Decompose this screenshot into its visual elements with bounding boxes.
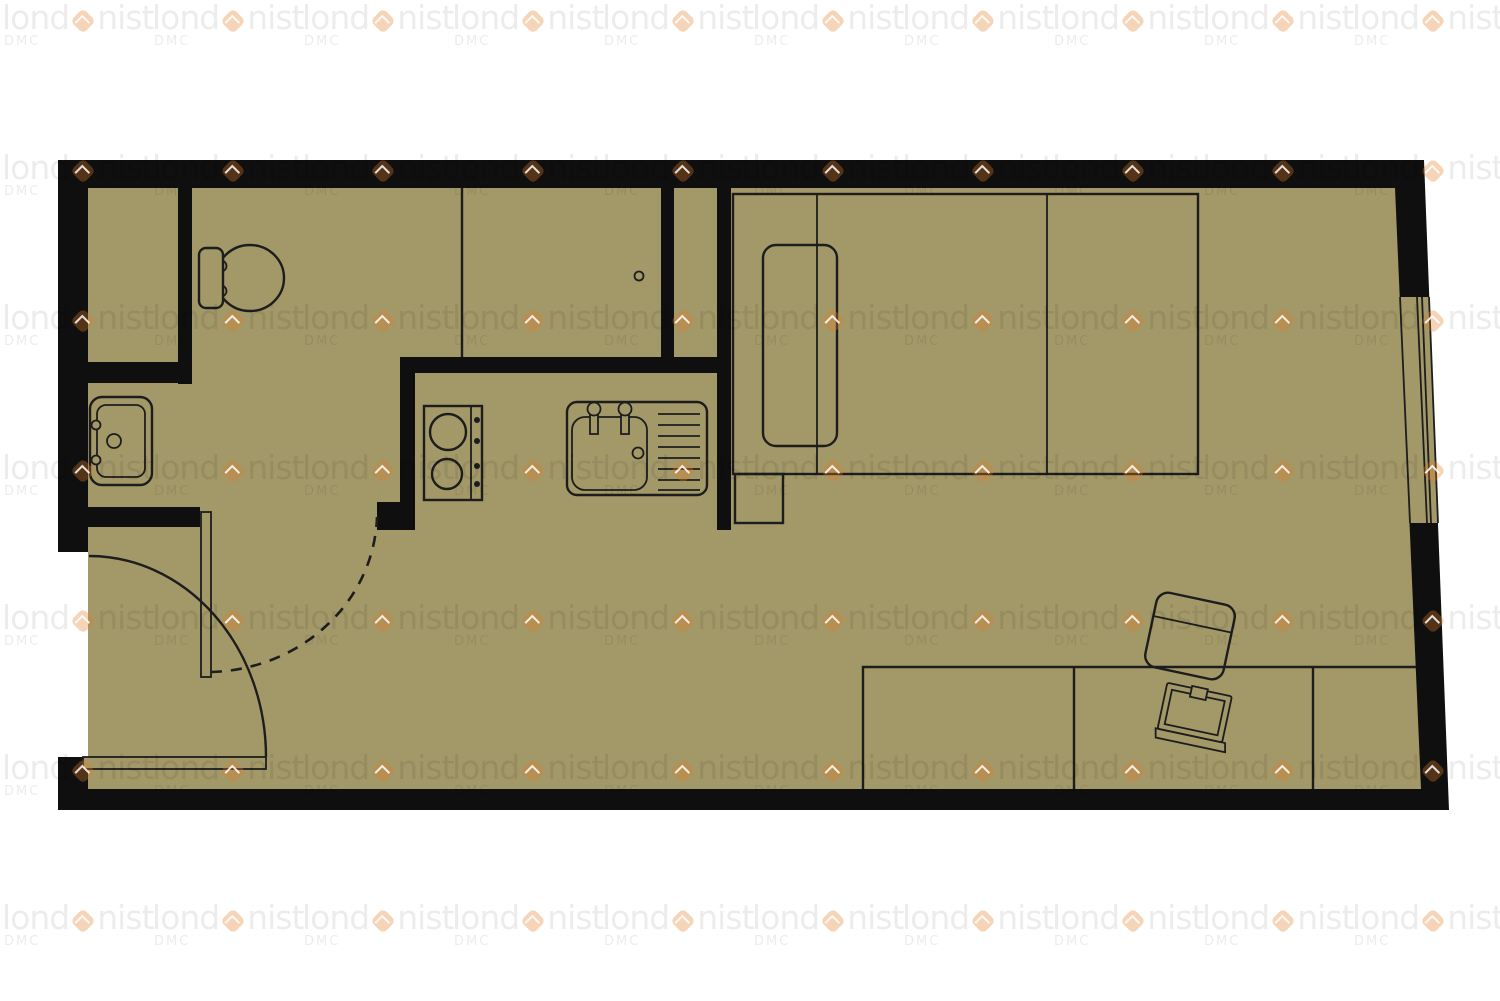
- floor: [88, 188, 1421, 789]
- hob-knob: [474, 481, 480, 487]
- bathroom-door-leaf: [201, 512, 211, 677]
- kitchen-wall-stub: [377, 502, 415, 530]
- hob-knob: [474, 438, 480, 444]
- floorplan-drawing: [0, 0, 1500, 1001]
- toilet: [199, 245, 284, 311]
- kitchen-tap-head: [588, 403, 601, 416]
- closet-right-wall: [661, 188, 674, 357]
- hob-knob: [474, 417, 480, 423]
- laptop-camera-tab: [1190, 686, 1208, 700]
- toilet-bowl: [216, 245, 284, 311]
- kitchen-top-wall: [400, 357, 731, 373]
- hob-knob: [474, 463, 480, 469]
- kitchen-tap-head: [619, 403, 632, 416]
- shower-bottom-wall: [88, 362, 192, 383]
- bathroom-bottom-wall: [88, 507, 200, 527]
- shower-divider-wall: [178, 188, 192, 384]
- bathroom-sink: [90, 397, 152, 485]
- entrance-opening: [58, 552, 88, 757]
- entrance-door-leaf: [83, 757, 266, 769]
- toilet-cistern: [199, 248, 223, 308]
- bathroom-sink-tap: [92, 421, 101, 430]
- floorplan-page: londnistDMClondnistDMClondnistDMClondnis…: [0, 0, 1500, 1001]
- bathroom-sink-tap: [92, 456, 101, 465]
- kitchen-bed-divider-wall: [717, 188, 731, 530]
